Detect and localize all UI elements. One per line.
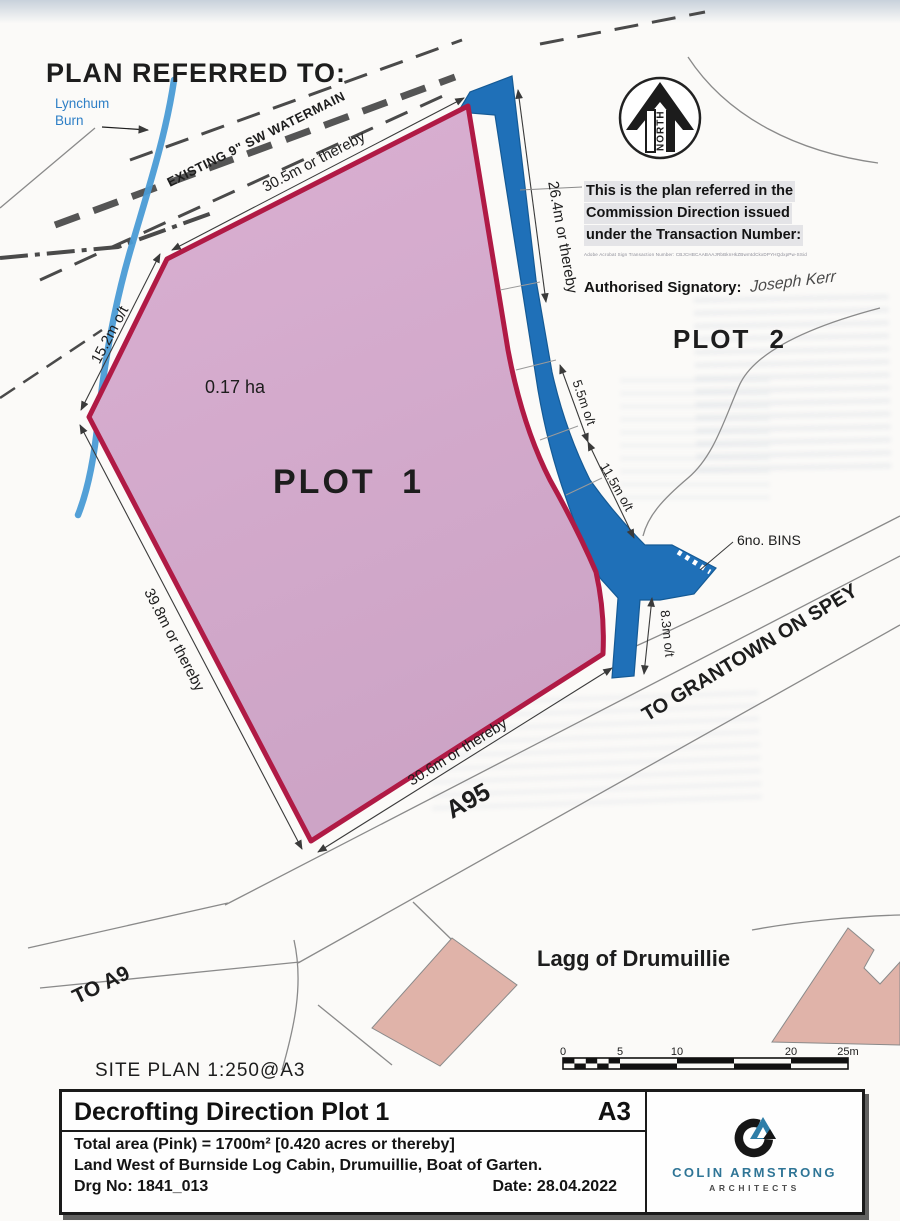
north-arrow-shaft-right <box>666 110 675 152</box>
commission-note: This is the plan referred in the Commiss… <box>584 180 824 297</box>
page-title: PLAN REFERRED TO: <box>46 58 346 88</box>
handwritten-signature: Joseph Kerr <box>750 268 836 297</box>
commission-note-line: This is the plan referred in the <box>584 180 824 202</box>
track-dashed-line <box>540 12 705 44</box>
firm-subtitle: ARCHITECTS <box>709 1183 800 1193</box>
commission-note-line: under the Transaction Number: <box>584 224 824 246</box>
settlement-label: Lagg of Drumuillie <box>537 946 730 971</box>
scale-tick: 5 <box>617 1046 623 1058</box>
bins-leader-line <box>700 542 733 570</box>
sheet-size-label: A3 <box>598 1096 631 1127</box>
scale-tick: 25m <box>837 1046 858 1058</box>
drawing-number: Drg No: 1841_013 <box>74 1178 208 1196</box>
watermain-label: EXISTING 9" SW WATERMAIN <box>164 88 347 189</box>
bins-label: 6no. BINS <box>737 532 801 548</box>
title-block: Decrofting Direction Plot 1 A3 Total are… <box>59 1089 865 1215</box>
scale-tick: 0 <box>560 1046 566 1058</box>
building <box>772 928 900 1045</box>
title-block-text-area: Decrofting Direction Plot 1 A3 Total are… <box>62 1092 647 1212</box>
scale-tick: 10 <box>671 1046 683 1058</box>
title-block-divider <box>62 1130 645 1132</box>
transaction-number-text: Adobe Acrobat Sign Transaction Number: C… <box>584 252 822 257</box>
plot2-label: PLOT 2 <box>673 324 786 354</box>
track-dashed-line <box>0 330 102 398</box>
plot1-area-label: 0.17 ha <box>205 377 266 397</box>
title-block-row1: Decrofting Direction Plot 1 A3 <box>74 1096 635 1127</box>
title-block-row-last: Drg No: 1841_013 Date: 28.04.2022 <box>74 1178 635 1196</box>
stream-leader-arrow <box>102 127 148 130</box>
north-label: NORTH <box>656 110 667 151</box>
field-boundary <box>413 902 452 940</box>
road-edge <box>28 903 228 948</box>
side-road-edge <box>282 940 298 1070</box>
colin-armstrong-logo-icon <box>732 1114 778 1160</box>
dim-line-spur <box>644 598 652 674</box>
scale-bar: 0 5 10 20 25m <box>560 1046 859 1069</box>
road-label-a9: TO A9 <box>69 962 134 1009</box>
dim-spur-label: 8.3m o/t <box>658 609 678 658</box>
fence-line <box>318 1005 392 1065</box>
field-boundary <box>752 915 900 930</box>
north-arrow: NORTH <box>620 78 700 158</box>
commission-note-text: Commission Direction issued <box>584 203 792 224</box>
architect-logo-area: COLIN ARMSTRONG ARCHITECTS <box>647 1092 862 1212</box>
commission-note-line: Commission Direction issued <box>584 202 824 224</box>
north-arrow-shaft-left <box>646 110 655 152</box>
drawing-title: Decrofting Direction Plot 1 <box>74 1098 389 1127</box>
field-boundary <box>0 128 95 208</box>
firm-name: COLIN ARMSTRONG <box>672 1165 837 1180</box>
field-boundary <box>688 57 878 163</box>
scanned-site-plan-page: PLAN REFERRED TO: Lynchum Burn EXISTING … <box>0 0 900 1221</box>
scale-bar-segments <box>563 1058 848 1069</box>
commission-note-text: This is the plan referred in the <box>584 181 795 202</box>
scale-tick: 20 <box>785 1046 797 1058</box>
plot1-label: PLOT 1 <box>273 463 424 501</box>
signatory-label: Authorised Signatory: <box>584 279 742 296</box>
drawing-date: Date: 28.04.2022 <box>492 1178 617 1196</box>
stream-label-line1: Lynchum <box>55 96 109 111</box>
total-area-line: Total area (Pink) = 1700m² [0.420 acres … <box>74 1136 635 1154</box>
stream-label-line2: Burn <box>55 113 84 128</box>
building <box>372 938 517 1066</box>
site-plan-scale-label: SITE PLAN 1:250@A3 <box>95 1060 306 1081</box>
signature-row: Authorised Signatory: Joseph Kerr <box>584 279 824 297</box>
road-label-a95: A95 <box>441 778 495 825</box>
site-address-line: Land West of Burnside Log Cabin, Drumuil… <box>74 1157 635 1175</box>
commission-note-text: under the Transaction Number: <box>584 225 803 246</box>
dim-right-label: 26.4m or thereby <box>544 180 581 295</box>
